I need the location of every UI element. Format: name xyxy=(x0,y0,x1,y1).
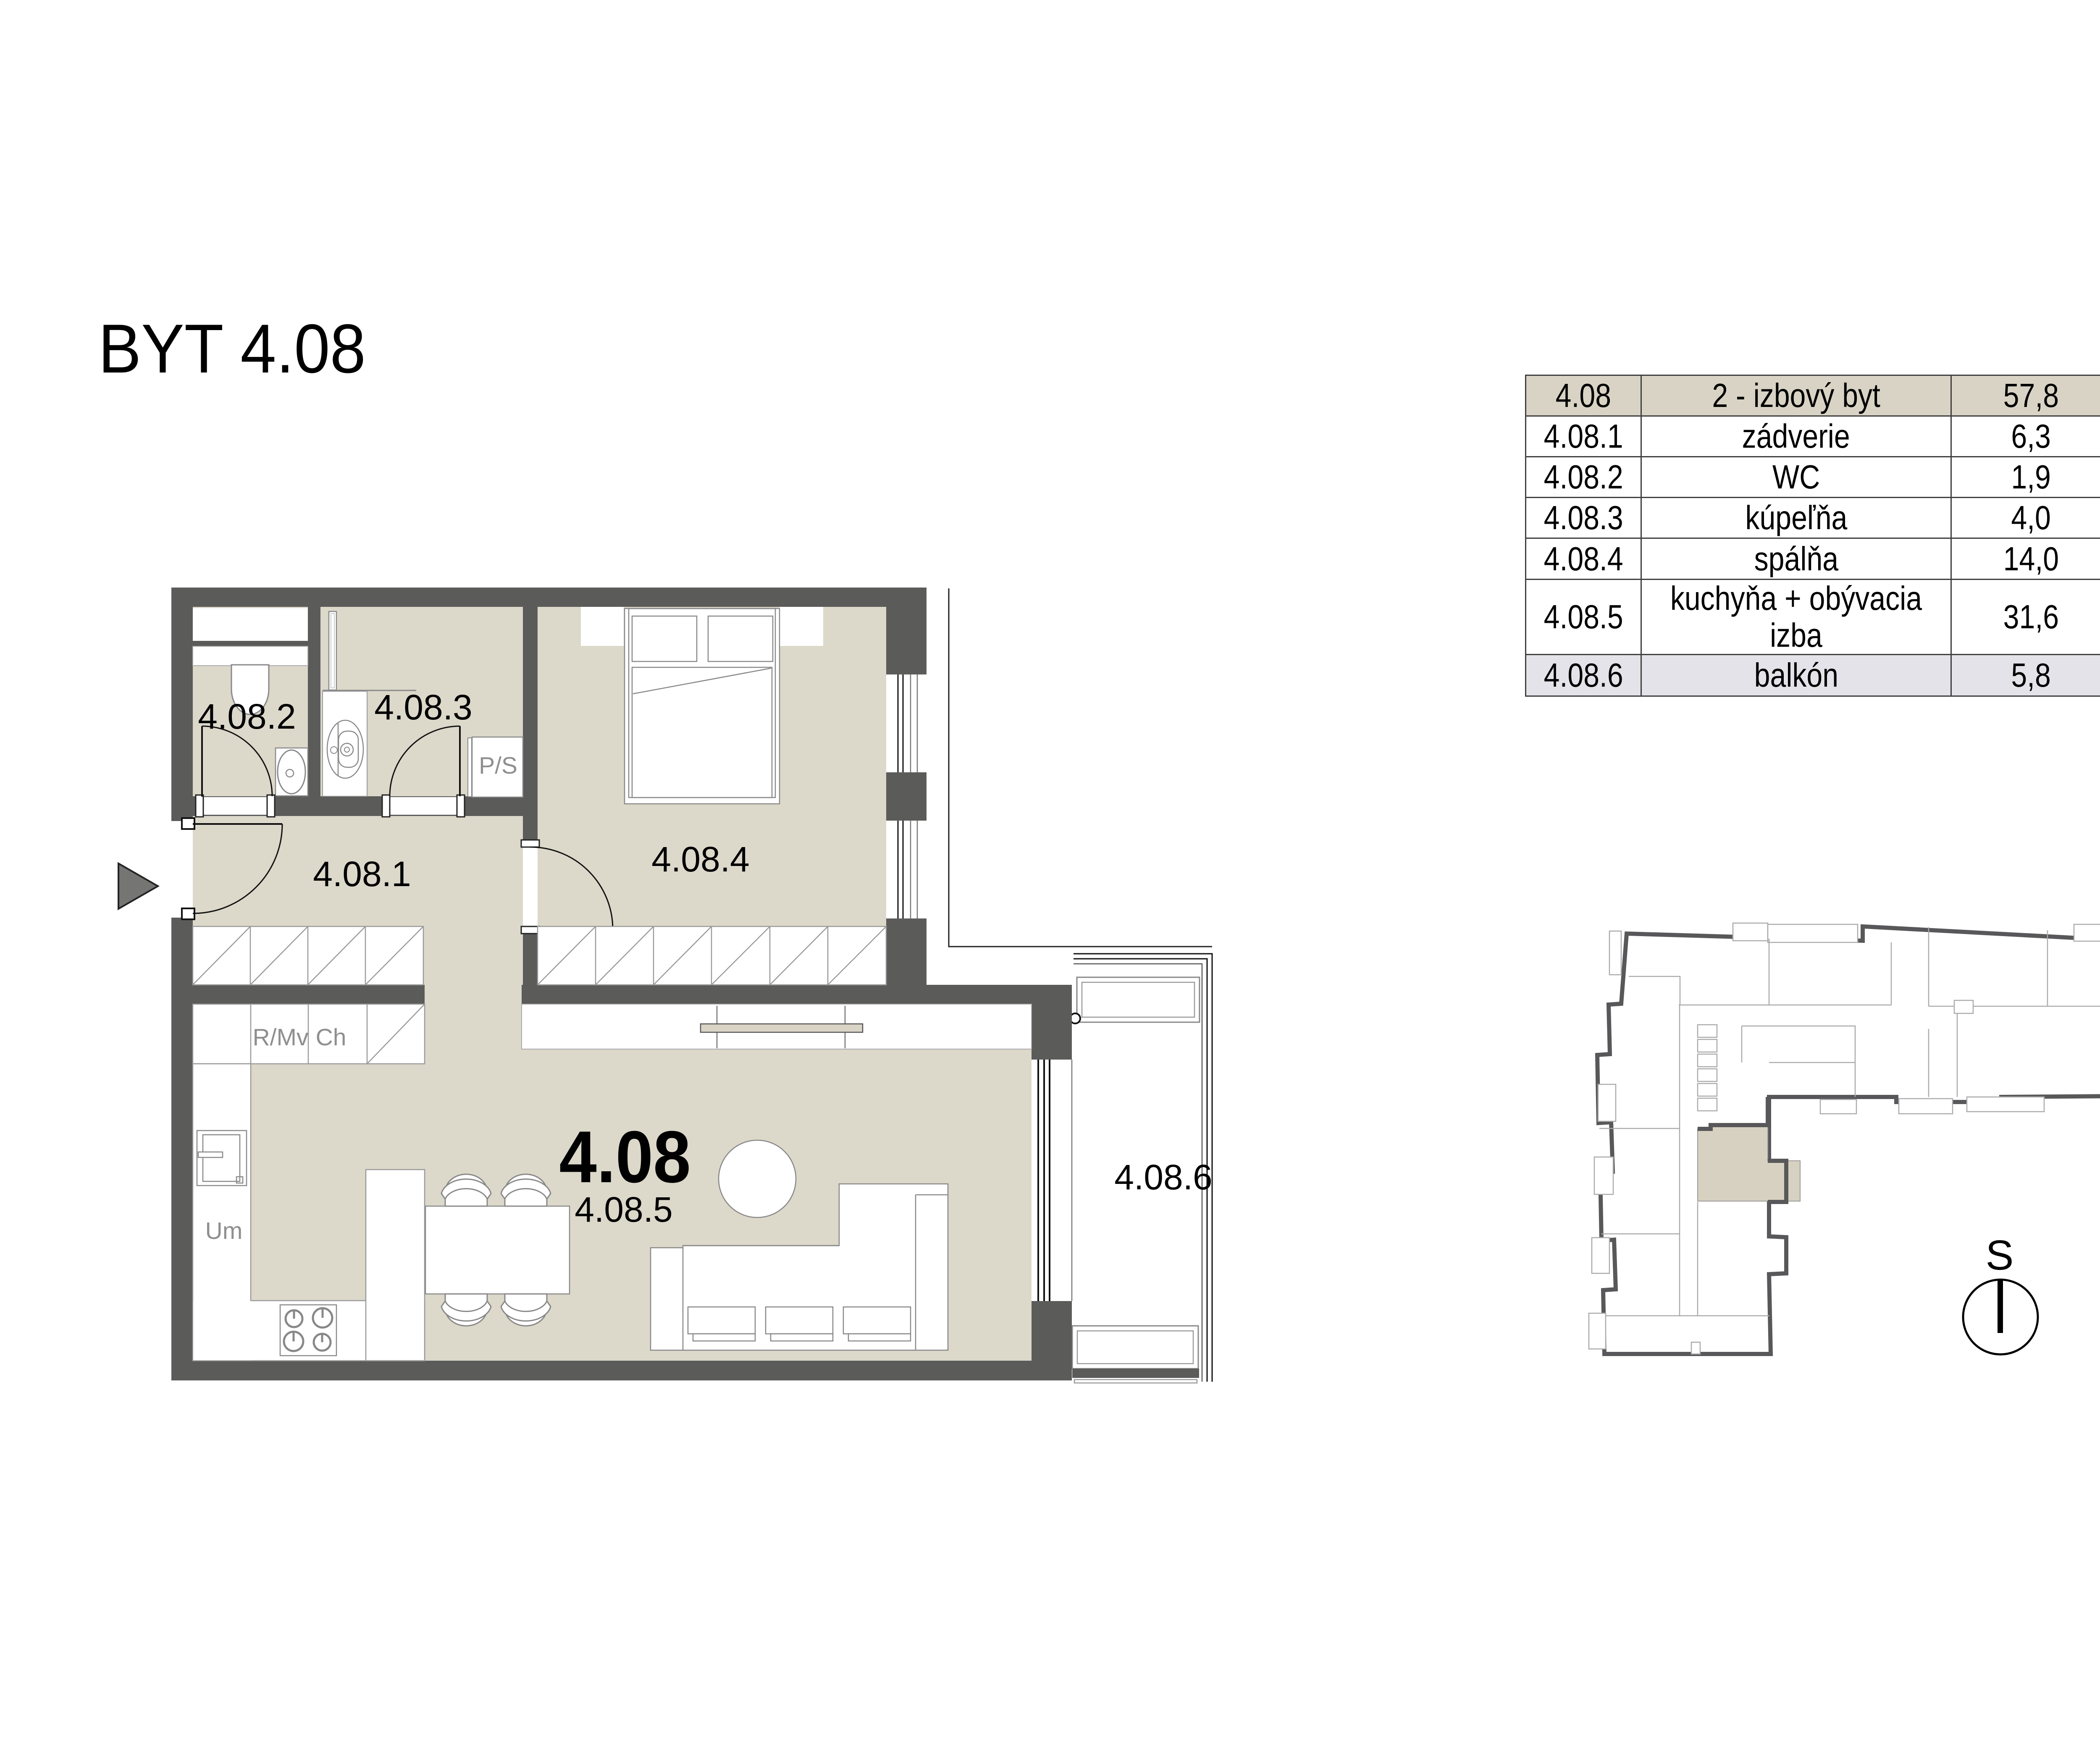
svg-text:4.08.3: 4.08.3 xyxy=(374,687,472,727)
svg-text:S: S xyxy=(1986,1232,2014,1279)
svg-text:4.08.4: 4.08.4 xyxy=(651,840,750,879)
svg-text:Ch: Ch xyxy=(316,1024,346,1051)
svg-text:4.08.2: 4.08.2 xyxy=(198,697,296,736)
svg-text:R/Mv: R/Mv xyxy=(253,1024,309,1051)
svg-text:P/S: P/S xyxy=(479,752,517,779)
svg-text:4.08.6: 4.08.6 xyxy=(1114,1157,1213,1197)
svg-text:4.08: 4.08 xyxy=(559,1116,690,1198)
svg-text:4.08.5: 4.08.5 xyxy=(575,1190,673,1229)
svg-text:Um: Um xyxy=(205,1217,243,1244)
svg-text:4.08.1: 4.08.1 xyxy=(313,854,411,894)
